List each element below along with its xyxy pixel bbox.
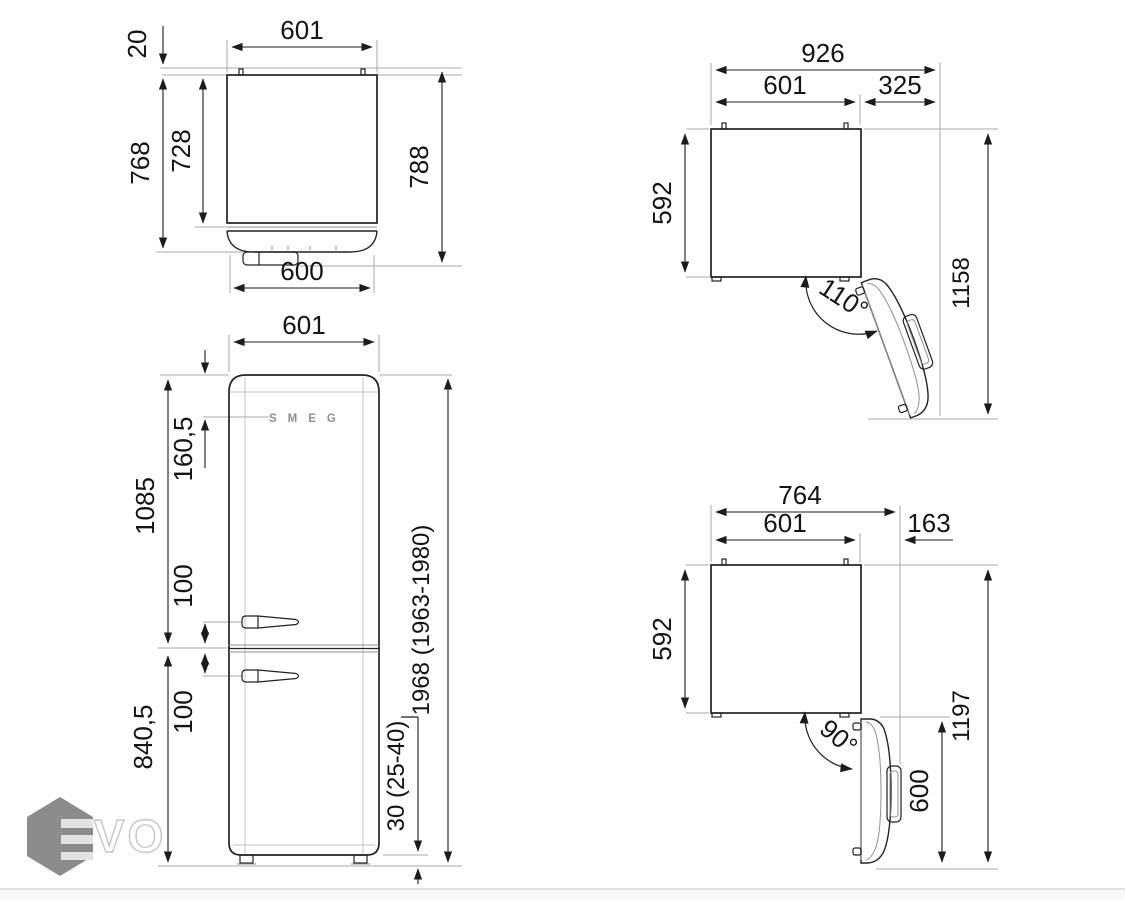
dim-label: 30 (25-40) [383, 721, 410, 832]
hinge-pin [361, 69, 365, 75]
dim-depth: 592 [647, 570, 685, 708]
extension-lines [686, 505, 998, 869]
evo-e-bar [61, 835, 93, 844]
plan-view-open-110: 110° 926 601 325 592 1158 [647, 38, 998, 421]
dim-label: 601 [763, 70, 806, 100]
dim-label: 163 [907, 508, 950, 538]
dim-label: 1197 [948, 690, 975, 742]
page-bottom-strip [0, 889, 1125, 900]
dimension-drawing-page: 601 20 768 728 788 600 [0, 0, 1125, 900]
plan-view-open-90: 90° 764 601 163 592 600 1197 [647, 480, 998, 869]
dim-label: 100 [168, 690, 198, 733]
evo-watermark: VO [27, 797, 166, 876]
dim-label: 601 [282, 310, 325, 340]
front-view: SMEG 601 160,5 1085 [128, 310, 462, 884]
dim-total-depth: 1158 [948, 134, 988, 414]
cabinet-outline [227, 69, 377, 265]
cabinet-outline [711, 559, 861, 717]
dim-label: 768 [125, 141, 155, 184]
dim-door-swing: 325 [865, 70, 935, 102]
dim-total-width: 926 [716, 38, 935, 70]
dim-wall-gap: 20 [122, 26, 163, 64]
dim-label: 592 [647, 617, 677, 660]
dim-width: 601 [234, 310, 374, 342]
dim-label: 1158 [948, 257, 975, 309]
smeg-logo: SMEG [269, 413, 347, 425]
hinge-pin [722, 559, 726, 565]
dim-depth-total: 788 [404, 72, 442, 262]
dim-label: 840,5 [128, 704, 158, 769]
dim-label: 100 [168, 564, 198, 607]
extension-lines [686, 63, 998, 419]
dim-label: 600 [280, 256, 323, 286]
dim-feet-height: 30 (25-40) [383, 717, 418, 884]
dim-depth: 592 [647, 134, 685, 272]
dim-label: 1085 [130, 477, 160, 535]
dim-label: 788 [404, 145, 434, 188]
dim-label: 926 [801, 38, 844, 68]
foot [240, 855, 253, 863]
evo-letters: VO [94, 810, 166, 862]
plan-view-closed: 601 20 768 728 788 600 [122, 15, 462, 293]
dim-label: 601 [280, 15, 323, 45]
door-swing-arc: 90° [805, 712, 864, 769]
dim-label: 764 [778, 480, 821, 510]
dim-height: 1968 (1963-1980) [408, 379, 448, 862]
dim-label: 1968 (1963-1980) [408, 525, 435, 716]
dim-label: 600 [904, 769, 934, 812]
open-door-110 [854, 269, 948, 421]
hinge-pin [844, 123, 848, 129]
angle-label: 110° [814, 272, 874, 325]
dim-width: 601 [716, 70, 855, 102]
dim-door-width: 600 [904, 722, 942, 862]
dim-logo-offset: 160,5 [168, 350, 205, 482]
dim-fridge-section: 1085 [130, 380, 168, 643]
dimension-drawing: 601 20 768 728 788 600 [0, 0, 1125, 900]
dim-total-depth: 1197 [948, 570, 988, 862]
fridge-outline: SMEG [229, 375, 379, 864]
dim-width: 601 [716, 508, 855, 540]
evo-e-bar [61, 852, 93, 860]
door-front-curve [227, 231, 377, 252]
dim-width-top: 601 [232, 15, 372, 47]
dim-label: 160,5 [168, 416, 198, 481]
hinge-pin [844, 559, 848, 565]
hinge-pin [239, 69, 243, 75]
dim-label: 20 [122, 30, 152, 59]
dim-door-swing: 163 [905, 508, 953, 540]
dim-depth-cabinet: 728 [166, 79, 203, 223]
dim-label: 601 [763, 508, 806, 538]
lower-door-handle [242, 670, 299, 682]
cabinet-outline [711, 123, 861, 281]
hinge-pin [722, 123, 726, 129]
foot [354, 855, 367, 863]
dim-handle-offset-upper: 100 [168, 564, 205, 643]
evo-e-bar [61, 819, 93, 828]
dim-label: 728 [166, 129, 196, 172]
dim-label: 325 [878, 70, 921, 100]
dim-handle-offset-lower: 100 [168, 654, 205, 734]
upper-door-handle [242, 616, 299, 628]
dim-depth-with-door: 768 [125, 79, 163, 248]
dim-door-width: 600 [234, 256, 370, 288]
dim-label: 592 [647, 181, 677, 224]
angle-label: 90° [814, 713, 863, 761]
